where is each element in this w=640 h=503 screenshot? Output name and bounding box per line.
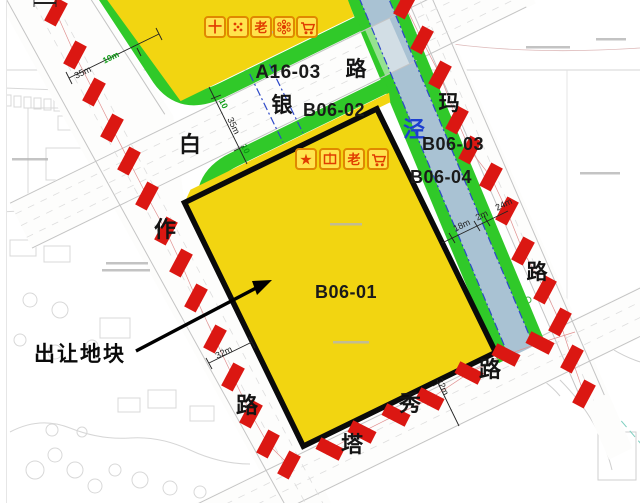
parcel-label-a16-03: A16-03 [255, 62, 320, 83]
elderly-icon: 老 [346, 152, 360, 167]
flower-icon [274, 17, 294, 37]
parcel-label-b06-04: B06-04 [410, 167, 472, 187]
facility-icons-a16-03: 十 老 [205, 17, 317, 37]
road-char-bai: 白 [179, 132, 201, 157]
cart-icon [297, 17, 317, 37]
open-book-icon [320, 149, 340, 169]
road-char-xiu: 秀 [398, 391, 421, 416]
map-margin [0, 0, 6, 503]
star-icon: ★ [299, 152, 312, 169]
parcel-label-b06-02: B06-02 [303, 100, 365, 120]
elderly-icon: 老 [253, 20, 267, 35]
parcel-label-b06-03: B06-03 [422, 134, 484, 154]
road-char-ma: 玛 [439, 92, 460, 115]
road-char-zuo: 作 [154, 217, 176, 242]
land-transfer-plan-map: A16-03 路 银 B06-02 白 玛 泾 B06-03 B06-04 作 … [0, 0, 640, 503]
road-char-right-lu: 路 [527, 260, 549, 284]
cart-icon [368, 149, 388, 169]
cross-icon: 十 [208, 19, 222, 35]
road-char-ta: 塔 [341, 432, 364, 457]
parcel-label-b06-01: B06-01 [315, 282, 377, 302]
plan-map-canvas: A16-03 路 银 B06-02 白 玛 泾 B06-03 B06-04 作 … [0, 0, 640, 503]
dots-icon [228, 17, 248, 37]
road-char-yin: 银 [272, 94, 294, 117]
legend-sale-parcel-label: 出让地块 [34, 342, 126, 366]
road-char-top-lu: 路 [346, 57, 368, 81]
road-char-bottom-lu: 路 [479, 357, 502, 382]
road-char-left-lu: 路 [236, 393, 259, 418]
